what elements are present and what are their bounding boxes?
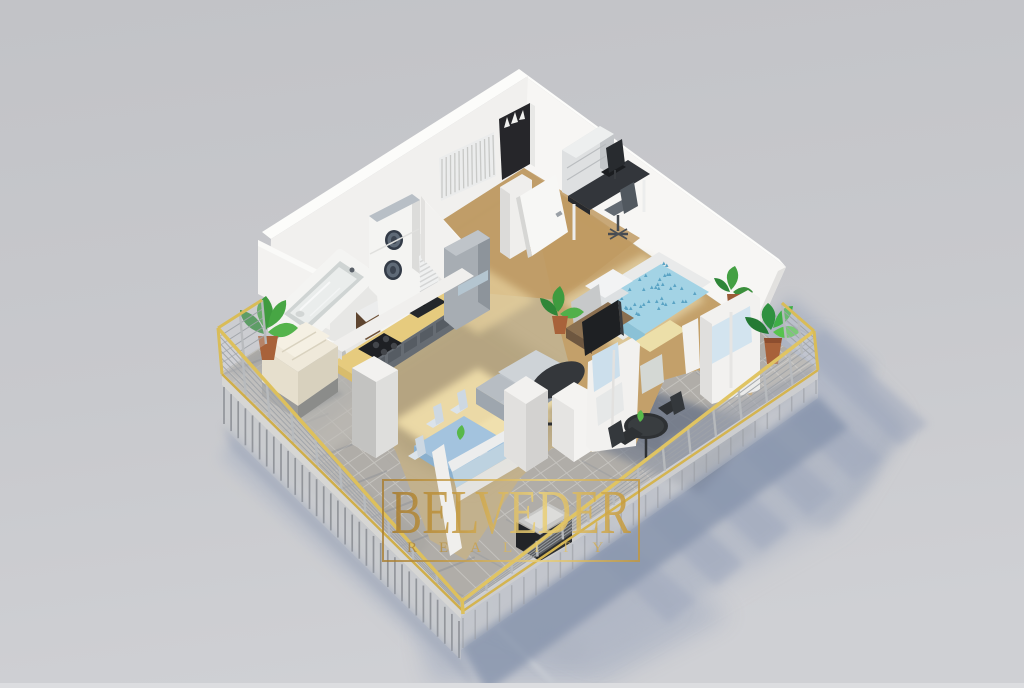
svg-text:BELVEDER: BELVEDER bbox=[391, 479, 631, 547]
svg-text:REALITY: REALITY bbox=[407, 540, 625, 556]
